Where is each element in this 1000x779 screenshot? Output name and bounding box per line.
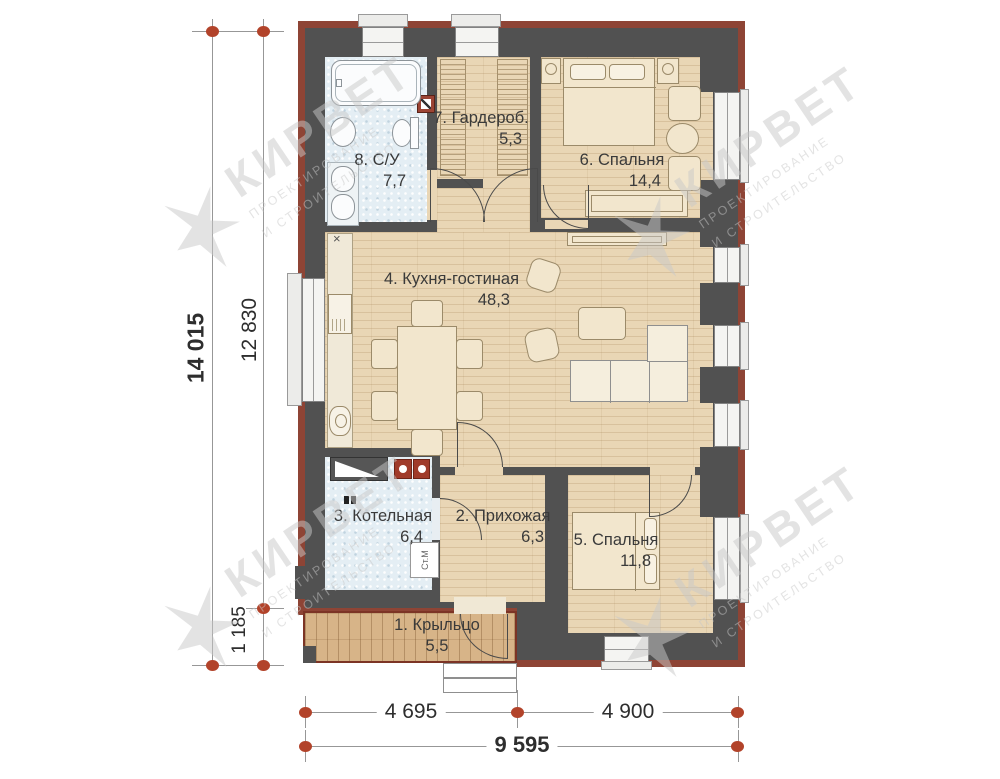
bathtub-inner [335,64,417,102]
axis-dot [731,707,744,718]
axis-dot [257,660,270,671]
room-label-porch: 1. Крыльцо 5,5 [378,615,496,658]
porch-step [443,678,517,693]
dining-chair [456,339,483,369]
room-area: 48,3 [383,290,520,311]
wall-bedroom5-top [568,467,650,475]
tank-circle [399,465,407,473]
bathtub [331,60,421,106]
sofa-cushion-line [649,361,650,403]
boiler-unit [330,457,388,481]
bidet [330,117,356,147]
door-leaf [430,168,431,222]
window-bottom-bedroom5 [604,636,649,662]
axis-dot [299,741,312,752]
dim-left-total: 14 015 [183,313,210,383]
axis-dot [731,741,744,752]
wall-pier [700,283,714,325]
room-area: 7,7 [338,171,416,192]
tv-bench [567,232,667,246]
room-label-wardrobe: 7. Гардероб. 5,3 [430,108,532,151]
toilet-bowl [392,119,412,147]
dining-chair [371,391,398,421]
bathtub-faucet [336,79,342,87]
dining-chair [456,391,483,421]
room-area: 5,3 [430,129,532,150]
dining-table [397,326,457,430]
wall-pier [700,447,714,517]
toilet-tank [410,117,419,149]
window-sill [287,273,302,406]
door-gap-boiler [432,498,440,540]
window-top-bathroom [362,27,404,57]
dim-left-main: 12 830 [238,298,262,362]
room-label-bedroom5: 5. Спальня 11,8 [571,530,661,573]
tv-bench-inner [572,236,662,243]
room-name: 2. Прихожая [452,506,554,527]
window-top-wardrobe [455,27,499,57]
sofa-chaise [647,325,688,362]
window-right-kitchen-1 [714,247,740,283]
axis-dot [206,26,219,37]
washing-machine-label: Ст.М [420,550,430,570]
window-sill [740,244,749,286]
room-label-bedroom6: 6. Спальня 14,4 [573,150,671,193]
dresser-inner [591,195,683,212]
dim-line-left-main [263,31,264,665]
boiler-tank [394,459,412,479]
room-label-bathroom: 8. С/У 7,7 [338,150,416,193]
dim-bottom-left: 4 695 [377,700,446,724]
room-name: 8. С/У [338,150,416,171]
room-name: 1. Крыльцо [378,615,496,636]
room-name: 4. Кухня-гостиная [383,269,520,290]
window-sill [740,89,749,183]
axis-dot [257,603,270,614]
axis-dot [206,660,219,671]
wall-pier [700,367,714,403]
porch-corner-post [303,646,316,663]
room-area: 6,4 [333,527,433,548]
blanket-line [564,87,656,88]
door-gap-hall [455,467,503,475]
kitchen-sink [329,406,351,436]
floor-plan: 14 015 12 830 1 185 4 695 4 900 9 595 [0,0,1000,779]
door-gap-entrance [454,597,506,614]
dining-chair [411,429,443,456]
dim-bottom-right: 4 900 [594,700,663,724]
wall-pier [700,180,714,247]
room-label-boiler: 3. Котельная 6,4 [333,506,433,549]
window-sill [358,14,408,27]
side-step [295,566,306,599]
door-leaf [457,422,458,467]
door-leaf [507,614,508,659]
porch-step [443,663,517,678]
armchair [668,86,701,121]
window-sill [740,514,749,603]
room-name: 7. Гардероб. [430,108,532,129]
axis-dot [257,26,270,37]
window-sill [451,14,501,27]
tank-circle [418,465,426,473]
wall-hall-top [440,467,455,475]
boiler-unit-triangle [335,461,379,477]
dining-chair [371,339,398,369]
fridge [328,294,352,334]
brand-logo-icon [142,171,261,294]
dim-line-left-total [212,31,213,665]
window-sill [740,400,749,450]
window-right-bedroom6 [714,92,740,180]
room-area: 6,3 [452,527,554,548]
window-sill [601,661,652,670]
room-name: 3. Котельная [333,506,433,527]
wall-boiler-hall [432,457,440,498]
fridge-lines [332,319,348,331]
door-leaf [537,168,538,222]
room-label-hall: 2. Прихожая 6,3 [452,506,554,549]
window-left-kitchen [302,278,325,402]
wall-bedroom6-bottom [588,220,713,229]
wall-hall-top [503,467,568,475]
axis-dot [299,707,312,718]
sink [331,194,355,220]
window-right-bedroom5 [714,517,740,600]
window-right-kitchen-2 [714,325,740,367]
bed [563,58,655,146]
vent-mark: × [333,231,341,246]
door-leaf [649,475,650,517]
room-name: 6. Спальня [573,150,671,171]
window-sill [740,322,749,370]
lamp [545,63,557,75]
sofa-seat [570,360,688,402]
wall-socket [351,496,356,504]
kitchen-sink-bowl [335,414,347,428]
wall-pier [700,57,714,92]
sofa-cushion-line [610,361,611,403]
door-gap-bedroom5 [650,467,695,475]
dim-left-porch: 1 185 [229,606,251,654]
lamp [662,63,674,75]
room-name: 5. Спальня [571,530,661,551]
room-area: 5,5 [378,636,496,657]
window-right-kitchen-3 [714,403,740,447]
dresser [585,190,688,217]
room-label-kitchen: 4. Кухня-гостиная 48,3 [383,269,520,312]
dim-bottom-total: 9 595 [486,732,557,758]
wall-socket [344,496,349,504]
axis-dot [511,707,524,718]
boiler-tank [413,459,430,479]
room-area: 14,4 [573,171,671,192]
armchair [668,156,701,191]
pillow [570,64,606,80]
coffee-table [578,307,626,340]
room-area: 11,8 [571,551,661,572]
pillow [609,64,645,80]
